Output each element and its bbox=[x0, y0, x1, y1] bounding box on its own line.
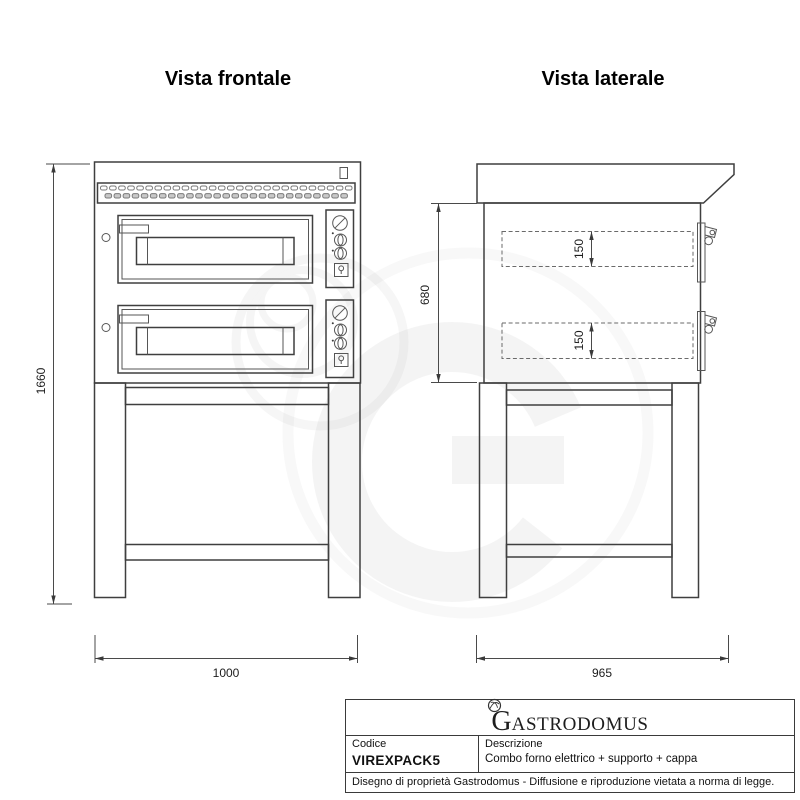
watermark bbox=[236, 253, 648, 623]
thermometer-dial-icon bbox=[333, 216, 348, 231]
door-handle bbox=[137, 238, 295, 265]
dim-label-1000: 1000 bbox=[213, 666, 240, 680]
indicator-light-icon bbox=[102, 234, 110, 242]
code-value: VIREXPACK5 bbox=[352, 753, 472, 768]
description-cell: Descrizione Combo forno elettrico + supp… bbox=[479, 736, 794, 772]
dim-overall-height: 1660 bbox=[34, 164, 90, 604]
stand-rail bbox=[126, 545, 329, 561]
code-description-row: Codice VIREXPACK5 Descrizione Combo forn… bbox=[346, 735, 794, 772]
door-badge bbox=[120, 225, 149, 233]
dimensions: 1660 1000 680 bbox=[34, 164, 729, 680]
dim-label-965: 965 bbox=[592, 666, 612, 680]
brand-row: GASTRODOMUS bbox=[346, 700, 794, 735]
code-cell: Codice VIREXPACK5 bbox=[346, 736, 479, 772]
code-label: Codice bbox=[352, 738, 472, 750]
exhaust-hood bbox=[477, 164, 734, 203]
brand-name: ASTRODOMUS bbox=[512, 714, 649, 735]
dim-label-680: 680 bbox=[418, 285, 432, 305]
brand-logo: GASTRODOMUS bbox=[491, 709, 648, 734]
stand-leg bbox=[95, 383, 126, 598]
dim-label-150-lower: 150 bbox=[572, 330, 586, 350]
legal-notice: Disegno di proprietà Gastrodomus - Diffu… bbox=[346, 772, 794, 792]
description-label: Descrizione bbox=[485, 738, 788, 750]
dim-chamber-lower: 150 bbox=[572, 323, 594, 359]
dim-overall-depth: 965 bbox=[477, 635, 729, 680]
title-block: GASTRODOMUS Codice VIREXPACK5 Descrizion… bbox=[345, 699, 795, 793]
vent-grille bbox=[98, 183, 356, 203]
thermostat-knob-icon bbox=[335, 234, 347, 246]
dim-overall-width: 1000 bbox=[95, 635, 358, 680]
drawing-area: 1660 1000 680 bbox=[0, 0, 800, 690]
grille-slots bbox=[101, 186, 352, 198]
globe-icon bbox=[487, 698, 502, 713]
dim-chamber-upper: 150 bbox=[572, 232, 594, 267]
description-value: Combo forno elettrico + supporto + cappa bbox=[485, 753, 788, 765]
dim-label-1660: 1660 bbox=[34, 367, 48, 394]
pilot-window bbox=[340, 168, 348, 179]
dim-label-150-upper: 150 bbox=[572, 239, 586, 259]
technical-drawing-sheet: Vista frontale Vista laterale bbox=[0, 0, 800, 800]
stand-leg bbox=[672, 383, 699, 598]
